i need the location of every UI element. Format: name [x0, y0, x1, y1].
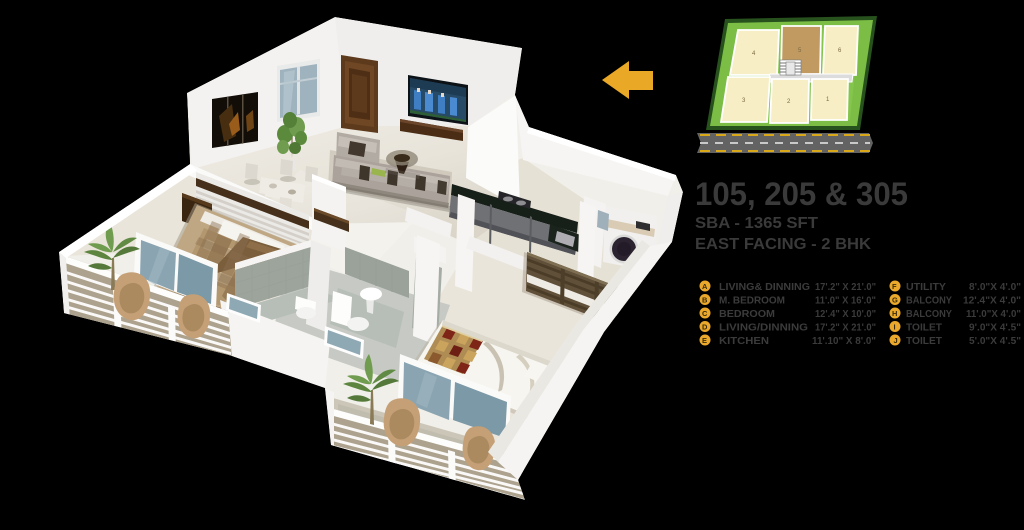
svg-text:C: C: [702, 309, 708, 318]
svg-text:SBA - 1365 SFT: SBA - 1365 SFT: [695, 215, 819, 232]
svg-text:J: J: [894, 336, 898, 345]
svg-text:LIVING& DINNING: LIVING& DINNING: [719, 281, 810, 293]
svg-text:LIVING/DINNING: LIVING/DINNING: [719, 322, 808, 334]
svg-text:12'.4" X 10'.0": 12'.4" X 10'.0": [815, 308, 876, 320]
svg-text:G: G: [892, 296, 898, 305]
svg-text:17'.2" X 21'.0": 17'.2" X 21'.0": [815, 322, 876, 334]
svg-text:11'.0"X 4'.0": 11'.0"X 4'.0": [966, 308, 1021, 320]
svg-text:M. BEDROOM: M. BEDROOM: [719, 295, 785, 307]
svg-text:BEDROOM: BEDROOM: [719, 308, 775, 320]
svg-text:I: I: [894, 323, 896, 332]
svg-text:11'.0" X 16'.0": 11'.0" X 16'.0": [815, 295, 876, 307]
svg-text:UTILITY: UTILITY: [906, 281, 946, 293]
svg-text:A: A: [702, 282, 708, 291]
svg-text:TOILET: TOILET: [906, 335, 943, 347]
svg-text:EAST FACING - 2 BHK: EAST FACING - 2 BHK: [695, 236, 872, 253]
svg-text:TOILET: TOILET: [906, 322, 943, 334]
svg-text:D: D: [702, 323, 708, 332]
svg-text:11'.10" X 8'.0": 11'.10" X 8'.0": [812, 335, 876, 347]
svg-text:KITCHEN: KITCHEN: [719, 335, 769, 347]
svg-text:12'.4"X 4'.0": 12'.4"X 4'.0": [963, 295, 1021, 307]
svg-text:105, 205 & 305: 105, 205 & 305: [695, 176, 908, 212]
svg-text:B: B: [702, 296, 708, 305]
svg-text:17'.2" X 21'.0": 17'.2" X 21'.0": [815, 281, 876, 293]
svg-text:BALCONY: BALCONY: [906, 308, 952, 320]
svg-text:E: E: [702, 336, 707, 345]
svg-text:8'.0"X 4'.0": 8'.0"X 4'.0": [969, 281, 1021, 293]
svg-text:9'.0"X 4'.5": 9'.0"X 4'.5": [969, 322, 1021, 334]
svg-text:F: F: [892, 282, 897, 291]
svg-text:BALCONY: BALCONY: [906, 295, 952, 307]
svg-text:5'.0"X 4'.5": 5'.0"X 4'.5": [969, 335, 1021, 347]
svg-text:H: H: [892, 309, 897, 318]
